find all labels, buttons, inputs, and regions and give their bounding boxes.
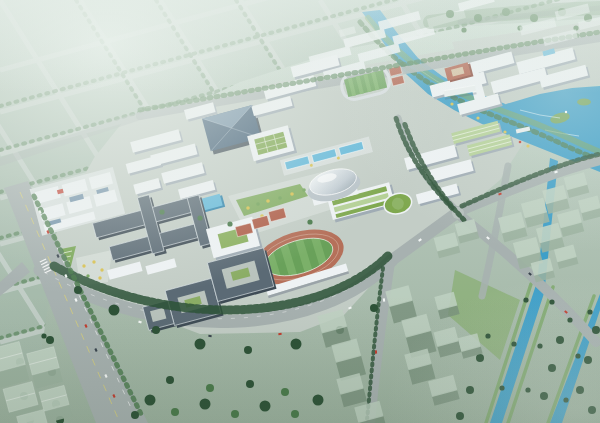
campus-aerial-rendering (0, 0, 600, 423)
haze-overlays (0, 0, 600, 423)
